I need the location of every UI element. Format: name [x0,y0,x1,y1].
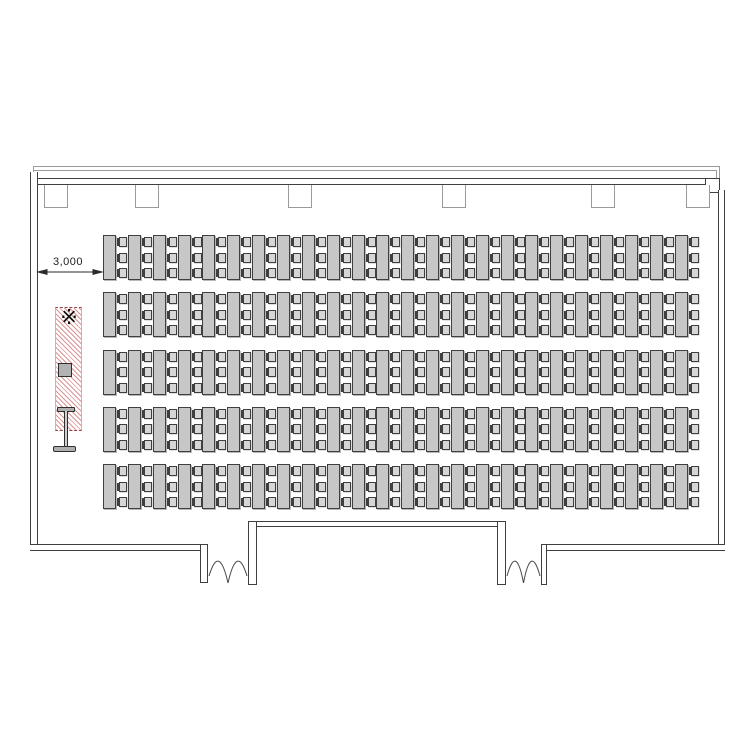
left-door-leaf-arc-1 [209,561,228,583]
left-door-leaf-arc-2 [228,561,247,583]
door-swings-and-dimension-line [0,0,750,750]
right-door-leaf-arc-2 [524,561,541,583]
floor-plan-canvas: ※ 3,000 [0,0,750,750]
dimension-arrow-left [38,270,47,275]
dimension-arrow-right [93,270,102,275]
right-door-leaf-arc-1 [507,561,524,583]
